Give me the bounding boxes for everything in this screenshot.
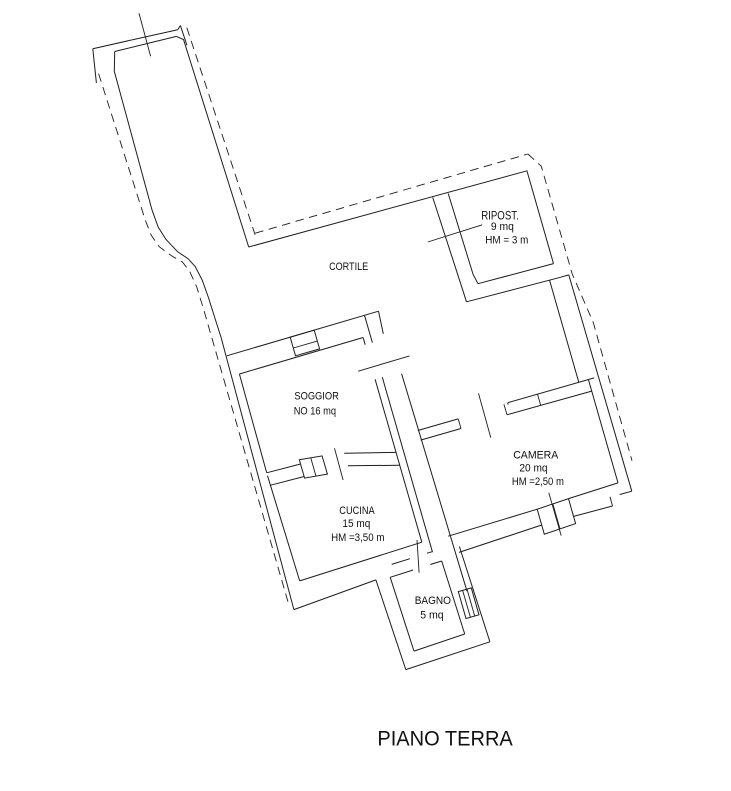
svg-text:NO 16 mq: NO 16 mq: [294, 405, 336, 417]
svg-text:CAMERA: CAMERA: [513, 450, 558, 462]
svg-text:20 mq: 20 mq: [519, 463, 547, 475]
svg-text:5 mq: 5 mq: [420, 610, 443, 622]
svg-text:9 mq: 9 mq: [491, 221, 514, 233]
svg-text:CUCINA: CUCINA: [339, 505, 375, 517]
svg-text:15 mq: 15 mq: [342, 518, 370, 530]
svg-text:PIANO TERRA: PIANO TERRA: [377, 728, 512, 751]
svg-text:HM = 3 m: HM = 3 m: [485, 235, 528, 247]
svg-text:SOGGIOR: SOGGIOR: [294, 390, 338, 402]
svg-text:HM =3,50 m: HM =3,50 m: [331, 532, 384, 544]
svg-text:HM =2,50 m: HM =2,50 m: [512, 476, 564, 488]
svg-text:CORTILE: CORTILE: [329, 261, 368, 273]
svg-text:BAGNO: BAGNO: [415, 595, 451, 607]
